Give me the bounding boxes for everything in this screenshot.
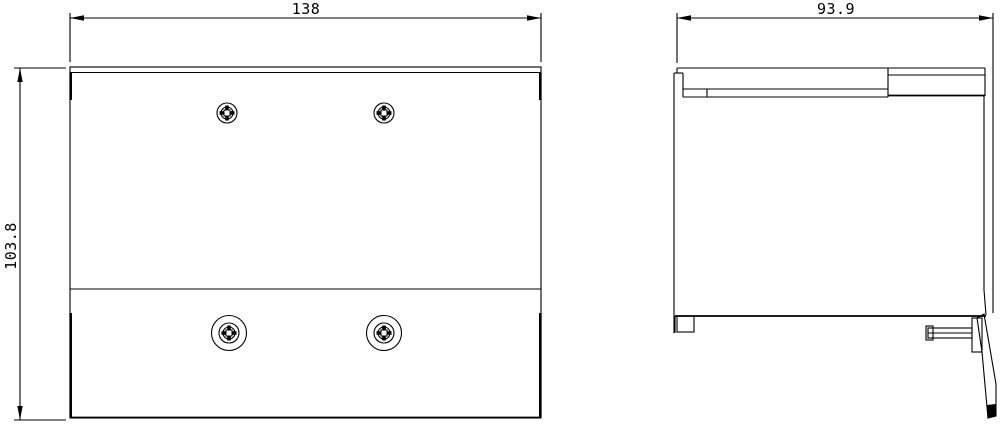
side-latch-plate bbox=[972, 318, 982, 352]
screw-top-left-icon bbox=[217, 103, 237, 123]
dim-height-arrow-top bbox=[17, 68, 22, 82]
dimension-depth: 93.9 bbox=[677, 0, 993, 313]
screw-top-right-icon bbox=[374, 103, 394, 123]
dim-width-arrow-right bbox=[527, 15, 541, 20]
dimension-drawing-canvas: 138 103.8 bbox=[0, 0, 1000, 424]
dimension-height: 103.8 bbox=[2, 68, 66, 420]
side-rear-edge-slant bbox=[984, 290, 986, 315]
dimension-drawing-page: 138 103.8 bbox=[0, 0, 1000, 424]
screw-bottom-left-icon bbox=[212, 316, 247, 351]
dim-height-arrow-bottom bbox=[17, 406, 22, 420]
side-latch-wedge bbox=[977, 314, 996, 418]
dim-width-label: 138 bbox=[292, 0, 321, 18]
side-view bbox=[674, 68, 996, 418]
dim-depth-label: 93.9 bbox=[817, 0, 855, 18]
side-latch-tip bbox=[987, 404, 996, 418]
side-foot bbox=[677, 316, 694, 332]
screw-bottom-right-icon bbox=[367, 316, 402, 351]
dimension-width: 138 bbox=[70, 0, 541, 62]
dim-depth-arrow-left bbox=[677, 15, 691, 20]
dim-height-label: 103.8 bbox=[2, 222, 20, 270]
front-view bbox=[70, 67, 541, 418]
dim-width-arrow-left bbox=[70, 15, 84, 20]
dim-depth-arrow-right bbox=[979, 15, 993, 20]
front-view-outline bbox=[70, 67, 541, 418]
side-latch bbox=[926, 314, 996, 418]
